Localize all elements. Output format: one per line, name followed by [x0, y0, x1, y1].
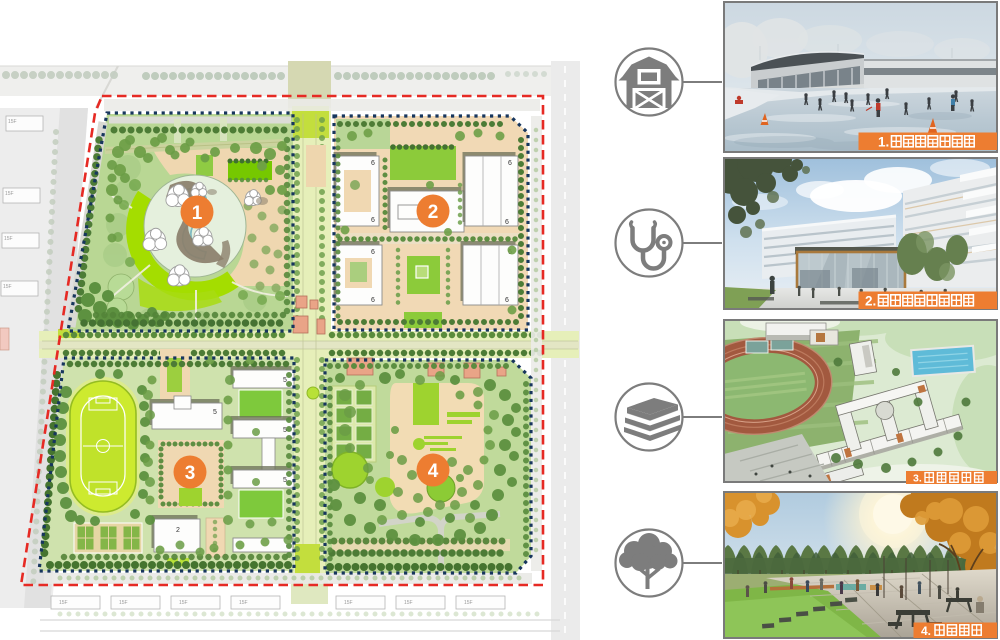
svg-text:5: 5	[213, 409, 217, 416]
svg-text:6: 6	[505, 219, 509, 226]
svg-text:2: 2	[428, 202, 439, 223]
svg-text:1.: 1.	[878, 135, 889, 150]
svg-text:15F: 15F	[119, 600, 128, 606]
svg-text:15F: 15F	[464, 600, 473, 606]
svg-text:3.: 3.	[913, 473, 922, 485]
svg-text:4: 4	[428, 461, 439, 482]
svg-text:15F: 15F	[5, 191, 14, 197]
svg-text:15F: 15F	[179, 600, 188, 606]
svg-text:2: 2	[176, 527, 180, 534]
svg-text:15F: 15F	[4, 236, 13, 242]
svg-text:2.: 2.	[865, 294, 876, 309]
svg-text:3: 3	[185, 463, 196, 484]
svg-text:6: 6	[505, 297, 509, 304]
svg-text:15F: 15F	[239, 600, 248, 606]
svg-text:6: 6	[371, 297, 375, 304]
svg-text:6: 6	[371, 217, 375, 224]
svg-text:15F: 15F	[3, 284, 12, 290]
svg-text:4.: 4.	[921, 624, 931, 638]
svg-text:6: 6	[371, 249, 375, 256]
svg-text:15F: 15F	[59, 600, 68, 606]
svg-text:1: 1	[192, 203, 203, 224]
svg-text:6: 6	[508, 160, 512, 167]
svg-text:6: 6	[371, 160, 375, 167]
svg-text:15F: 15F	[404, 600, 413, 606]
svg-text:15F: 15F	[344, 600, 353, 606]
svg-text:15F: 15F	[8, 119, 17, 125]
